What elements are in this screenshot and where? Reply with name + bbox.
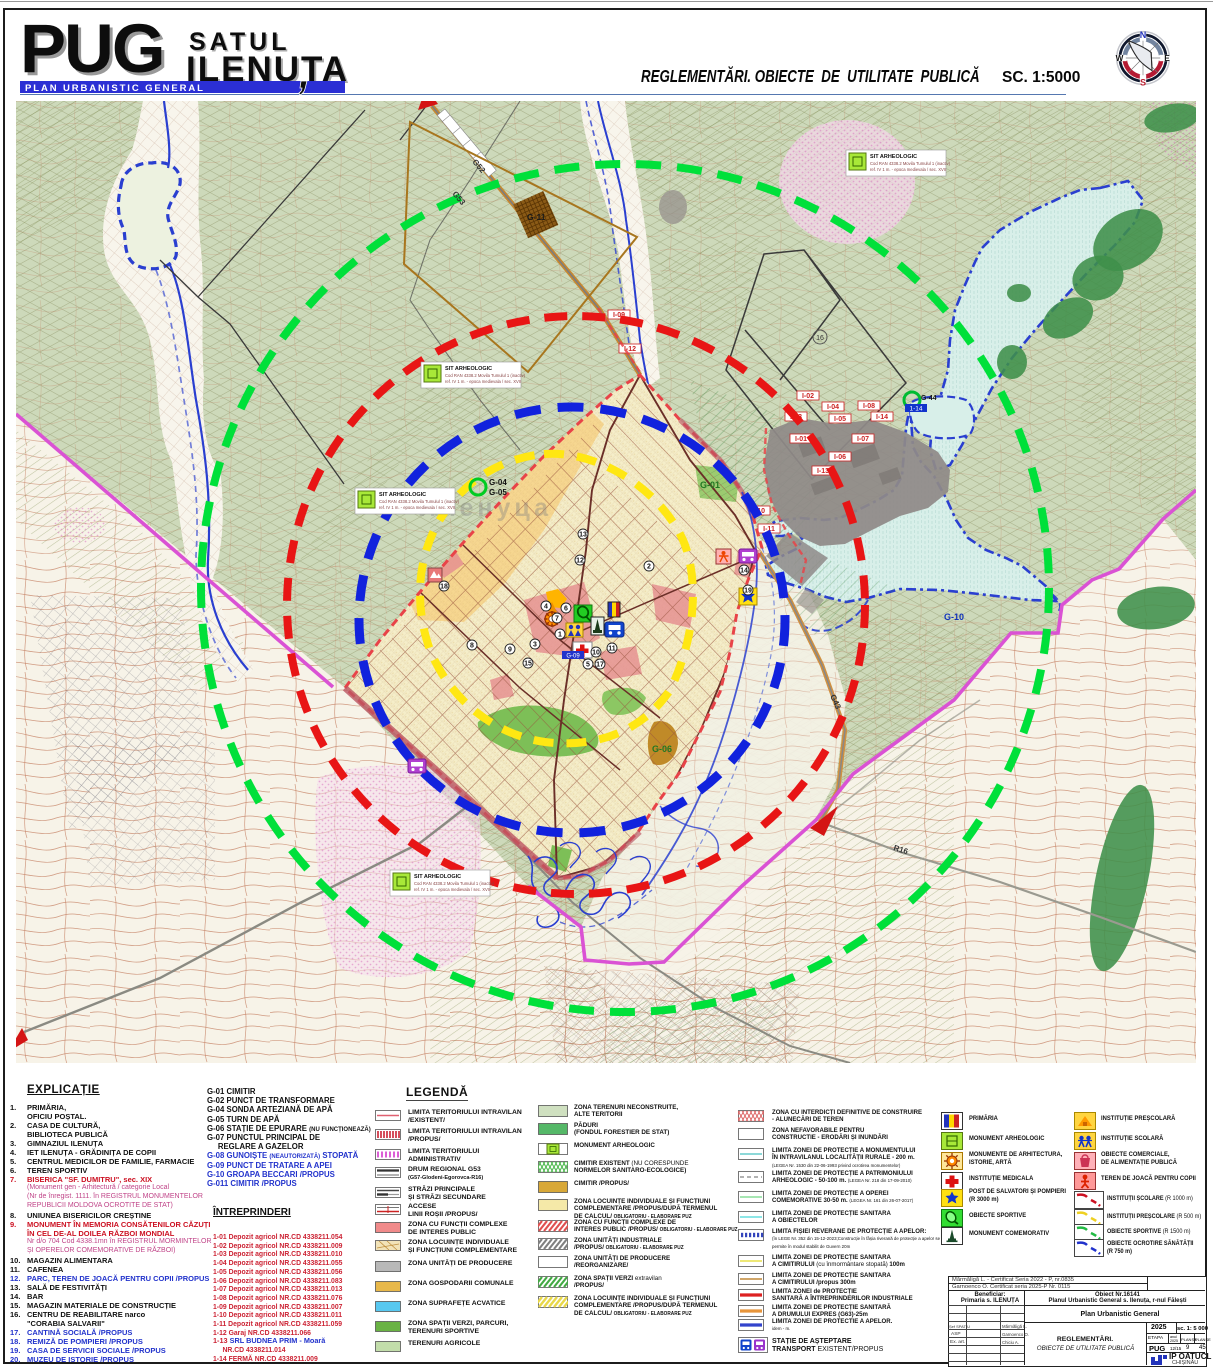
svg-text:G-05: G-05 [489, 488, 507, 497]
svg-text:2: 2 [647, 563, 651, 570]
svg-text:SIT ARHEOLOGIC: SIT ARHEOLOGIC [445, 366, 492, 372]
svg-text:I-07: I-07 [857, 436, 869, 443]
svg-text:G-44: G-44 [921, 395, 937, 402]
svg-text:18: 18 [440, 583, 448, 590]
svg-text:G-11: G-11 [527, 212, 546, 222]
svg-text:I-06: I-06 [834, 454, 846, 461]
svg-text:E: E [1164, 54, 1170, 63]
svg-text:15: 15 [524, 660, 532, 667]
svg-text:8: 8 [470, 642, 474, 649]
svg-text:I-04: I-04 [827, 404, 839, 411]
svg-text:SIT ARHEOLOGIC: SIT ARHEOLOGIC [379, 492, 426, 498]
svg-text:G-10: G-10 [944, 612, 964, 622]
svg-text:I-05: I-05 [834, 416, 846, 423]
svg-text:S: S [1140, 78, 1146, 87]
svg-text:SIT ARHEOLOGIC: SIT ARHEOLOGIC [870, 154, 917, 160]
svg-text:12: 12 [576, 557, 584, 564]
svg-text:Cod RAN 4338.2 Movila Tumulul: Cod RAN 4338.2 Movila Tumulul 1 (inactiv… [870, 161, 951, 166]
svg-text:5: 5 [586, 661, 590, 668]
svg-text:I-02: I-02 [802, 393, 814, 400]
svg-text:16: 16 [816, 335, 824, 342]
svg-text:Cod RAN 4338.2 Movila Tumulul: Cod RAN 4338.2 Movila Tumulul 1 (inactiv… [445, 373, 526, 378]
svg-text:ref. IV 1 m. - epoca medievala: ref. IV 1 m. - epoca medievala / sec. XV… [870, 167, 946, 172]
svg-text:3: 3 [533, 641, 537, 648]
svg-text:G-01: G-01 [700, 480, 720, 490]
svg-text:17: 17 [596, 661, 604, 668]
svg-text:N: N [1140, 30, 1147, 40]
svg-text:13: 13 [579, 531, 587, 538]
svg-text:19: 19 [744, 587, 752, 594]
svg-text:1: 1 [558, 631, 562, 638]
svg-text:10: 10 [592, 649, 600, 656]
svg-text:4: 4 [544, 603, 548, 610]
svg-text:I-13: I-13 [817, 468, 829, 475]
svg-text:9: 9 [508, 646, 512, 653]
svg-text:1-14: 1-14 [909, 406, 922, 413]
svg-text:6: 6 [564, 605, 568, 612]
svg-text:I-01: I-01 [795, 436, 807, 443]
svg-text:Cod RAN 4338.2 Movila Tumulul: Cod RAN 4338.2 Movila Tumulul 1 (inactiv… [379, 499, 460, 504]
svg-text:SIT ARHEOLOGIC: SIT ARHEOLOGIC [414, 874, 461, 880]
svg-text:G-04: G-04 [489, 478, 507, 487]
svg-text:ref. IV 1 m. - epoca medievala: ref. IV 1 m. - epoca medievala / sec. XV… [379, 505, 455, 510]
svg-text:I-08: I-08 [863, 403, 875, 410]
svg-text:ref. IV 1 m. - epoca medievala: ref. IV 1 m. - epoca medievala / sec. XV… [414, 887, 490, 892]
svg-text:G-09: G-09 [566, 654, 580, 660]
svg-text:Cod RAN 4338.2 Movila Tumulul: Cod RAN 4338.2 Movila Tumulul 1 (inactiv… [414, 881, 495, 886]
svg-text:14: 14 [740, 567, 748, 574]
svg-text:W: W [1116, 54, 1124, 63]
svg-text:I-14: I-14 [876, 414, 888, 421]
svg-text:7: 7 [555, 615, 559, 622]
svg-text:11: 11 [608, 645, 616, 652]
svg-text:G-06: G-06 [652, 744, 672, 754]
svg-text:ref. IV 1 m. - epoca medievala: ref. IV 1 m. - epoca medievala / sec. XV… [445, 379, 521, 384]
